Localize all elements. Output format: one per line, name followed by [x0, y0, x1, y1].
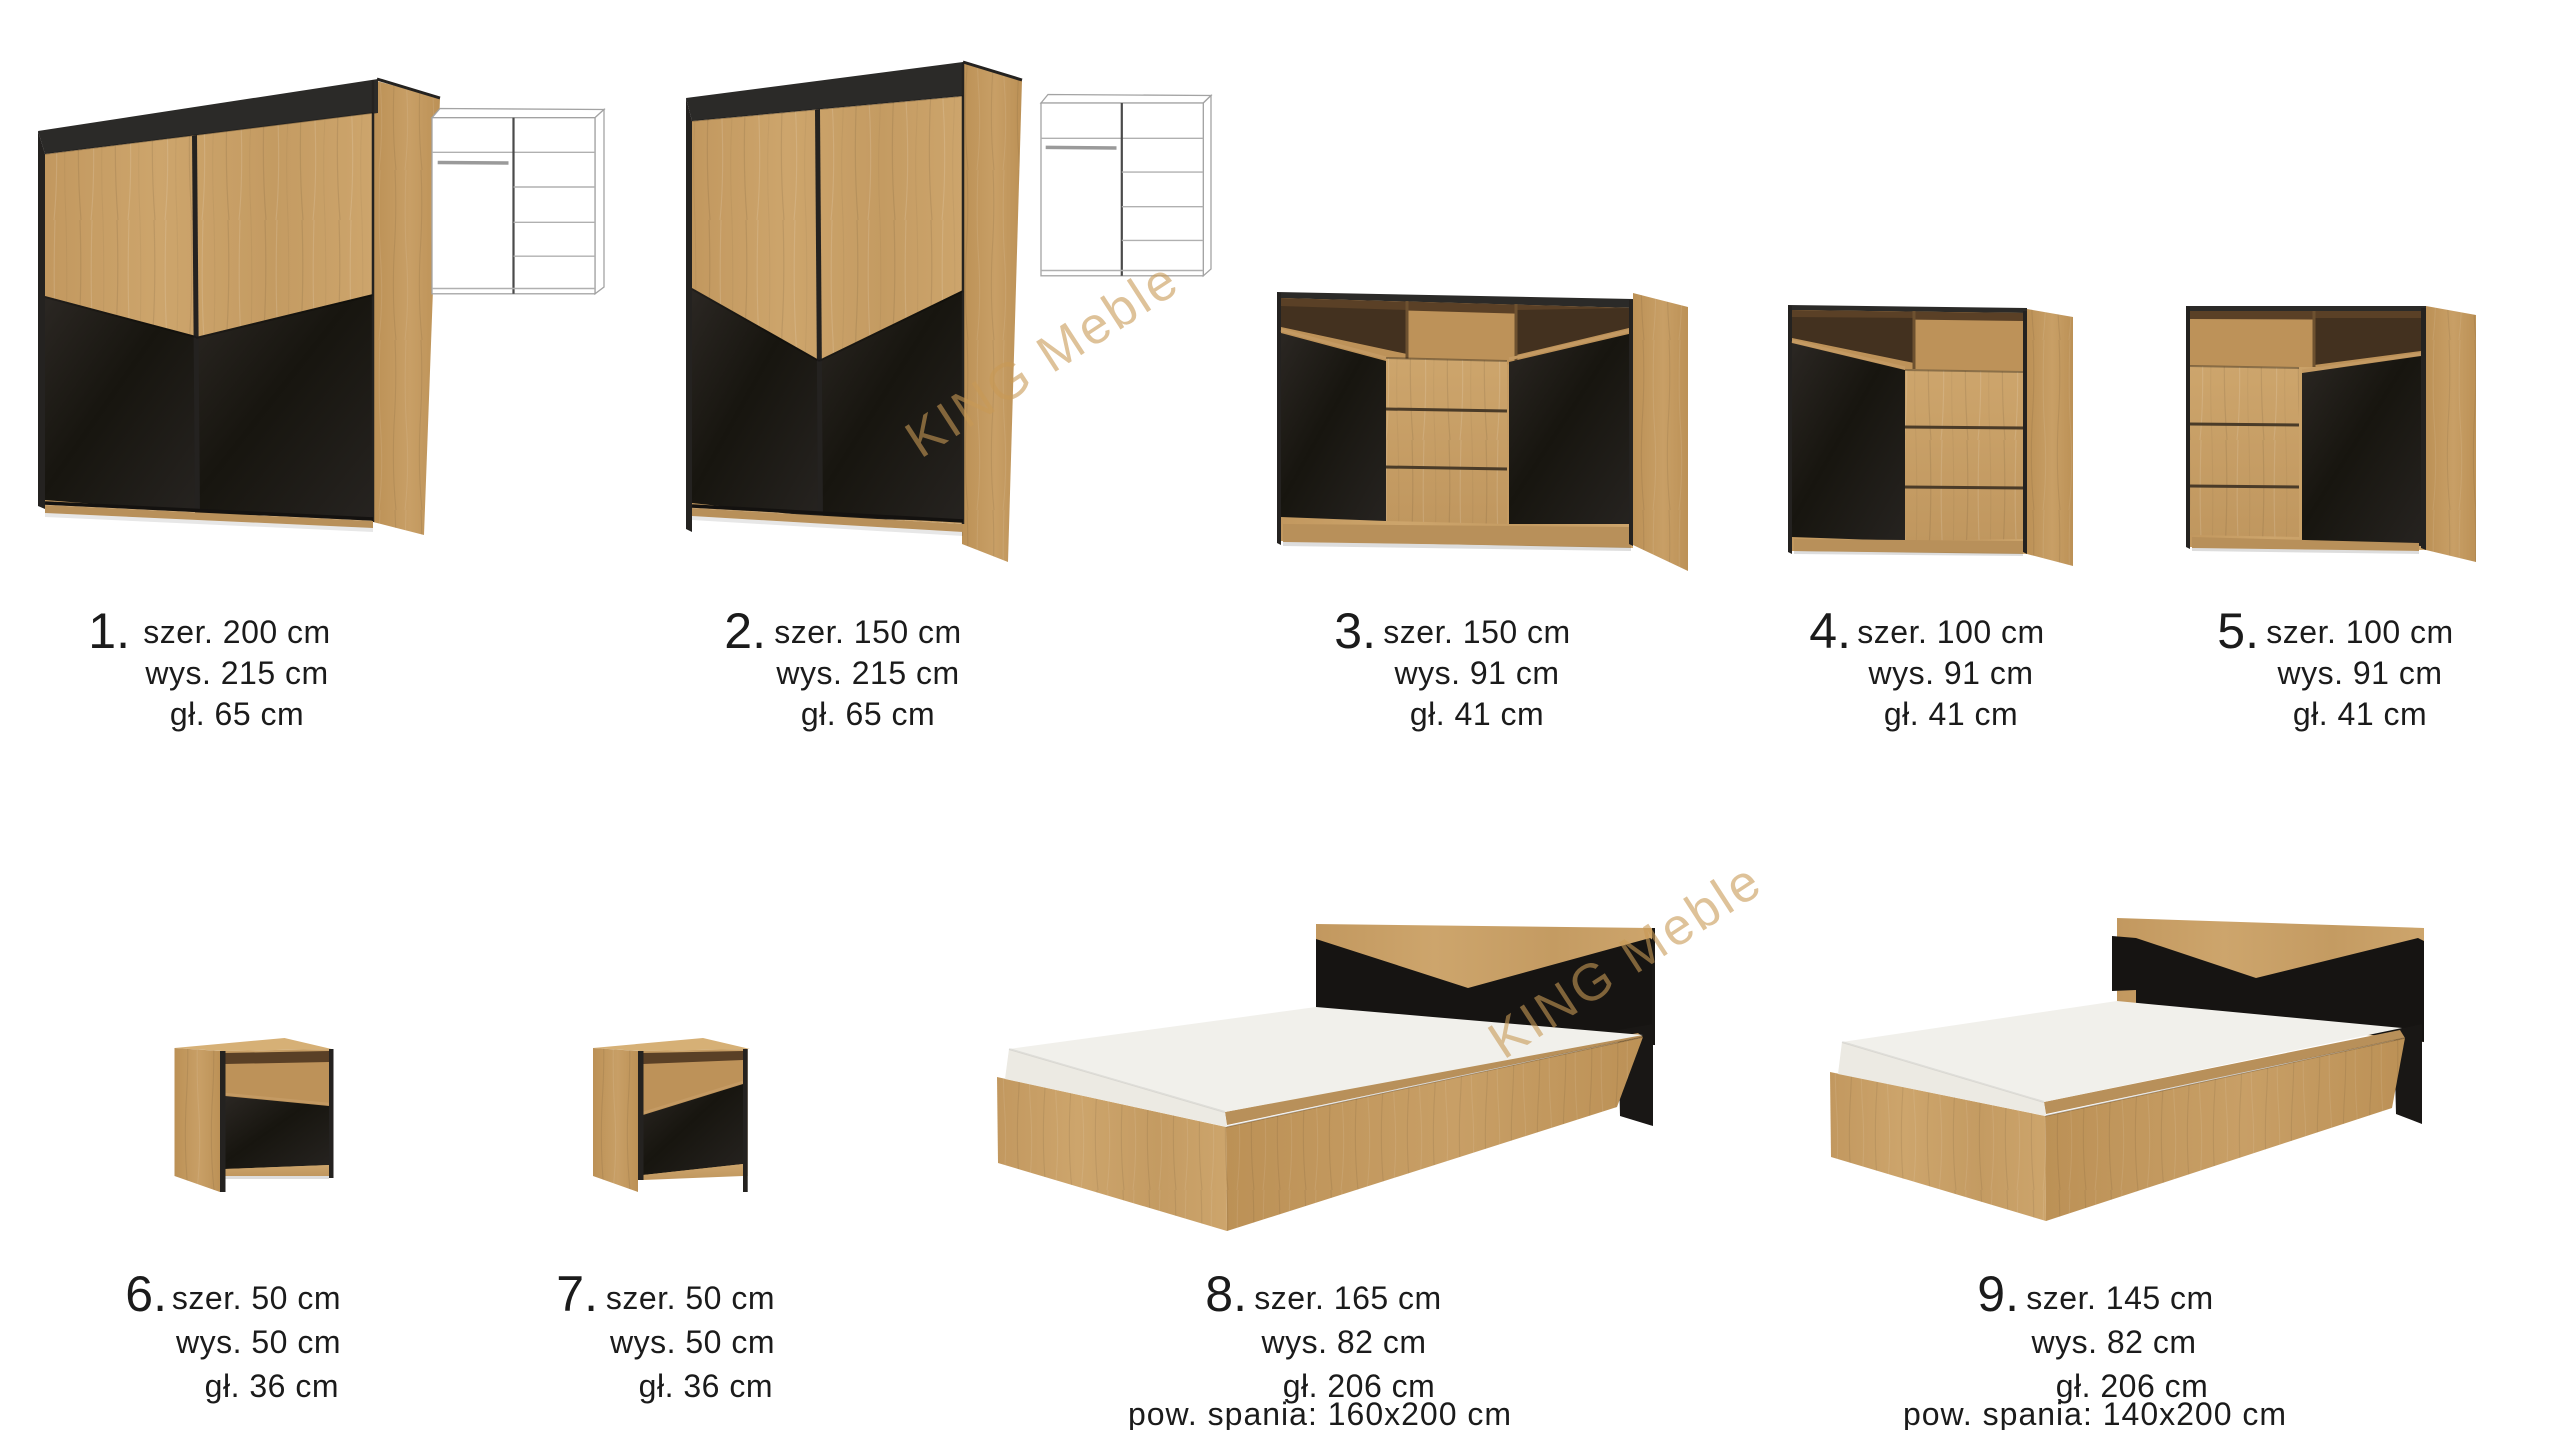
svg-text:szer. 100 cm: szer. 100 cm: [1857, 614, 2044, 650]
svg-text:szer. 100 cm: szer. 100 cm: [2266, 614, 2453, 650]
svg-text:7.: 7.: [556, 1266, 598, 1322]
svg-text:4.: 4.: [1809, 603, 1851, 659]
svg-text:szer. 150 cm: szer. 150 cm: [774, 614, 961, 650]
svg-text:gł. 41 cm: gł. 41 cm: [2293, 696, 2427, 732]
svg-text:2.: 2.: [724, 603, 766, 659]
svg-text:8.: 8.: [1205, 1266, 1247, 1322]
svg-text:wys. 91 cm: wys. 91 cm: [1393, 655, 1559, 691]
svg-text:gł. 41 cm: gł. 41 cm: [1410, 696, 1544, 732]
svg-text:1.: 1.: [88, 603, 130, 659]
svg-text:gł. 41 cm: gł. 41 cm: [1884, 696, 2018, 732]
svg-text:szer. 200 cm: szer. 200 cm: [143, 614, 330, 650]
svg-text:wys. 215 cm: wys. 215 cm: [775, 655, 959, 691]
svg-text:gł. 65 cm: gł. 65 cm: [801, 696, 935, 732]
svg-text:wys. 215 cm: wys. 215 cm: [144, 655, 328, 691]
svg-text:wys. 50 cm: wys. 50 cm: [175, 1324, 341, 1360]
svg-text:szer. 50 cm: szer. 50 cm: [606, 1280, 775, 1316]
svg-text:9.: 9.: [1977, 1266, 2019, 1322]
svg-text:wys. 91 cm: wys. 91 cm: [1867, 655, 2033, 691]
svg-text:pow. spania: 160x200 cm: pow. spania: 160x200 cm: [1128, 1396, 1512, 1430]
svg-text:gł. 36 cm: gł. 36 cm: [205, 1368, 339, 1404]
svg-text:szer. 145 cm: szer. 145 cm: [2026, 1280, 2213, 1316]
svg-text:6.: 6.: [125, 1266, 167, 1322]
svg-text:gł. 65 cm: gł. 65 cm: [170, 696, 304, 732]
svg-text:gł. 36 cm: gł. 36 cm: [639, 1368, 773, 1404]
svg-text:pow. spania: 140x200 cm: pow. spania: 140x200 cm: [1903, 1396, 2287, 1430]
svg-text:wys. 82 cm: wys. 82 cm: [2030, 1324, 2196, 1360]
svg-text:szer. 165 cm: szer. 165 cm: [1254, 1280, 1441, 1316]
svg-text:5.: 5.: [2217, 603, 2259, 659]
svg-text:wys. 50 cm: wys. 50 cm: [609, 1324, 775, 1360]
svg-text:szer. 150 cm: szer. 150 cm: [1383, 614, 1570, 650]
svg-text:szer. 50 cm: szer. 50 cm: [172, 1280, 341, 1316]
svg-text:wys. 82 cm: wys. 82 cm: [1260, 1324, 1426, 1360]
svg-text:wys. 91 cm: wys. 91 cm: [2276, 655, 2442, 691]
svg-text:3.: 3.: [1334, 603, 1376, 659]
